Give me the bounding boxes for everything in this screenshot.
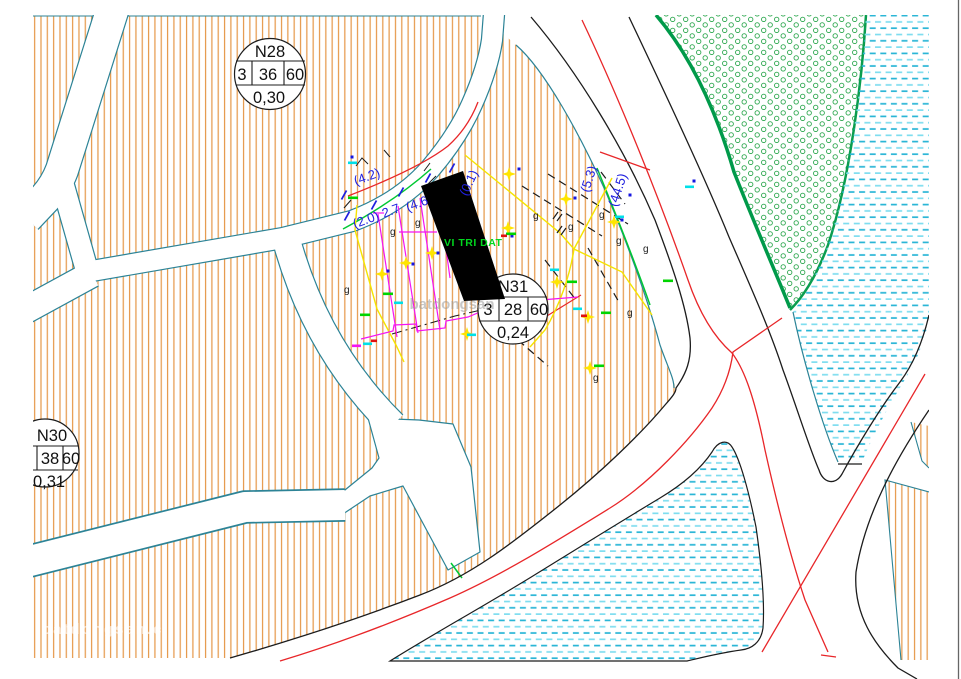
svg-text:g: g (616, 236, 622, 247)
svg-text:g: g (568, 222, 574, 233)
svg-text:g: g (344, 285, 350, 296)
svg-text:g: g (599, 210, 605, 221)
svg-text:36: 36 (259, 66, 277, 84)
svg-text:60: 60 (530, 301, 548, 319)
svg-text:g: g (533, 211, 539, 222)
svg-text:0,30: 0,30 (253, 89, 285, 107)
svg-text:g: g (390, 227, 396, 238)
svg-text:g: g (643, 244, 649, 255)
svg-text:60: 60 (286, 66, 304, 84)
svg-text:60: 60 (62, 450, 80, 468)
svg-text:g: g (627, 308, 633, 319)
svg-text:g: g (593, 373, 599, 384)
svg-text:batdongsan.c: batdongsan.c (42, 621, 164, 638)
svg-text:g: g (415, 218, 421, 229)
svg-text:batdongsan: batdongsan (410, 296, 495, 313)
svg-text:N28: N28 (255, 43, 285, 61)
svg-text:0,31: 0,31 (33, 473, 65, 491)
svg-text:38: 38 (41, 450, 59, 468)
svg-text:VI TRI DAT: VI TRI DAT (444, 237, 503, 249)
svg-text:N30: N30 (37, 427, 67, 445)
svg-text:3: 3 (237, 66, 246, 84)
svg-text:28: 28 (504, 301, 522, 319)
svg-text:0,24: 0,24 (497, 324, 529, 342)
